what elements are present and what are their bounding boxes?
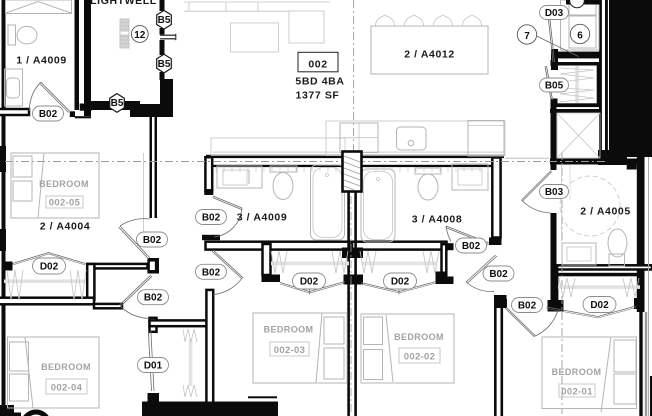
svg-text:002-03: 002-03	[274, 345, 305, 356]
svg-text:B02: B02	[202, 213, 221, 224]
svg-text:B02: B02	[202, 267, 221, 278]
svg-text:B05: B05	[545, 81, 564, 92]
svg-text:D02: D02	[300, 277, 319, 288]
svg-text:3 / A4009: 3 / A4009	[237, 212, 288, 224]
svg-text:BEDROOM: BEDROOM	[41, 362, 91, 372]
svg-text:002-01: 002-01	[561, 386, 593, 397]
svg-text:2 / A4005: 2 / A4005	[580, 206, 631, 218]
svg-text:002-05: 002-05	[49, 198, 81, 209]
svg-text:D02: D02	[40, 262, 59, 273]
svg-text:B02: B02	[489, 269, 508, 280]
svg-text:12: 12	[134, 30, 146, 41]
svg-text:7: 7	[524, 31, 530, 42]
svg-text:002-02: 002-02	[404, 351, 435, 362]
svg-text:B5: B5	[158, 59, 171, 70]
svg-text:BEDROOM: BEDROOM	[552, 367, 602, 377]
svg-text:B03: B03	[545, 187, 564, 198]
svg-text:D03: D03	[545, 8, 564, 19]
svg-text:B5: B5	[111, 98, 124, 109]
svg-text:1377 SF: 1377 SF	[296, 90, 340, 102]
svg-text:B02: B02	[144, 293, 163, 304]
svg-text:D01: D01	[144, 361, 163, 372]
svg-text:002: 002	[308, 59, 327, 71]
svg-text:BEDROOM: BEDROOM	[394, 332, 444, 342]
svg-text:002-04: 002-04	[51, 383, 83, 394]
svg-text:B5: B5	[158, 15, 171, 26]
svg-text:BEDROOM: BEDROOM	[264, 325, 314, 335]
svg-text:B02: B02	[462, 241, 481, 252]
svg-text:B02: B02	[143, 235, 162, 246]
svg-text:5BD 4BA: 5BD 4BA	[295, 76, 344, 88]
svg-text:B02: B02	[518, 301, 537, 312]
svg-text:D02: D02	[590, 300, 609, 311]
svg-text:B02: B02	[39, 109, 58, 120]
svg-text:6: 6	[577, 30, 583, 41]
svg-text:BEDROOM: BEDROOM	[39, 179, 89, 189]
svg-text:2 / A4012: 2 / A4012	[404, 49, 455, 61]
svg-text:1 / A4009: 1 / A4009	[16, 55, 67, 67]
svg-text:2 / A4004: 2 / A4004	[40, 221, 91, 233]
svg-text:LIGHTWELL: LIGHTWELL	[90, 0, 157, 7]
svg-text:3 / A4008: 3 / A4008	[412, 214, 463, 226]
svg-text:D02: D02	[391, 277, 410, 288]
